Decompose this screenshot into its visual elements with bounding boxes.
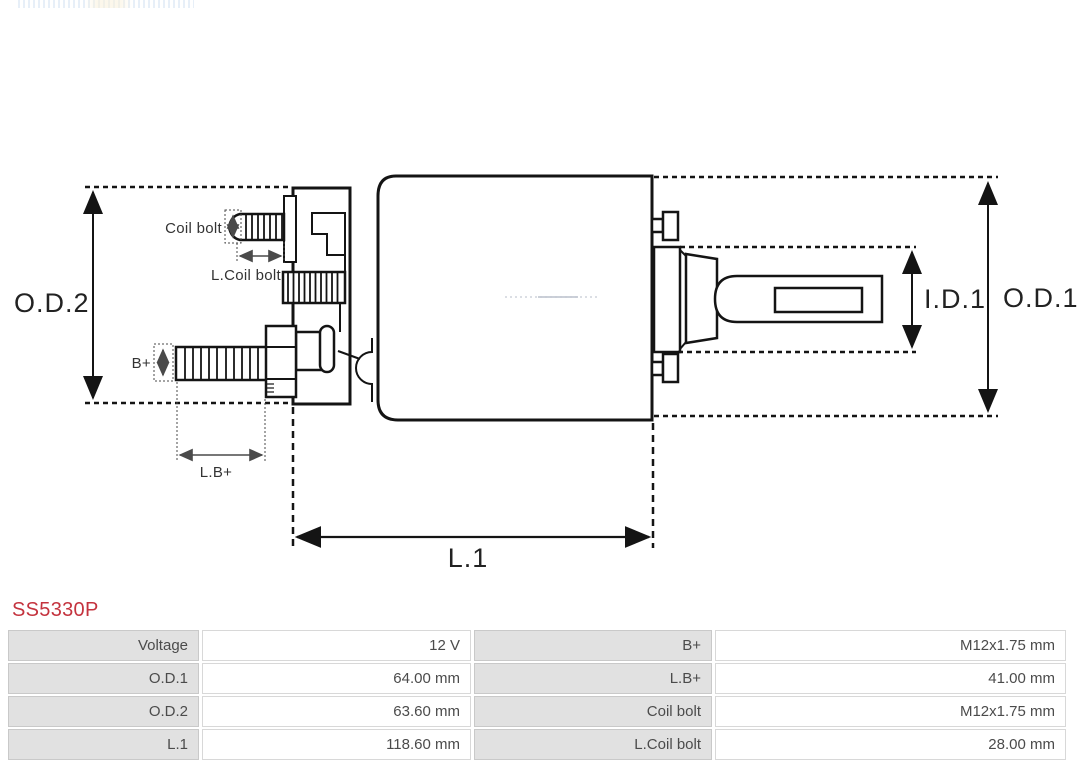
spec-label-cell: O.D.2 bbox=[8, 696, 199, 727]
spec-value-cell: 118.60 mm bbox=[202, 729, 471, 760]
spec-label-cell: B+ bbox=[474, 630, 712, 661]
spec-label-cell: Voltage bbox=[8, 630, 199, 661]
spec-label-cell: Coil bolt bbox=[474, 696, 712, 727]
id1-label: I.D.1 bbox=[924, 284, 986, 314]
spec-label-cell: L.B+ bbox=[474, 663, 712, 694]
b-plus-label: B+ bbox=[132, 355, 151, 372]
plunger-graphic bbox=[654, 247, 882, 352]
spec-value-cell: 28.00 mm bbox=[715, 729, 1066, 760]
dimension-b-plus: B+ bbox=[132, 344, 173, 381]
od1-label: O.D.1 bbox=[1003, 283, 1079, 313]
l-b-plus-label: L.B+ bbox=[200, 464, 232, 481]
od2-label: O.D.2 bbox=[14, 288, 90, 318]
spec-label-cell: L.1 bbox=[8, 729, 199, 760]
spec-label-cell: L.Coil bolt bbox=[474, 729, 712, 760]
table-row: O.D.1 64.00 mm L.B+ 41.00 mm bbox=[8, 663, 1066, 694]
table-row: L.1 118.60 mm L.Coil bolt 28.00 mm bbox=[8, 729, 1066, 760]
part-number: SS5330P bbox=[12, 599, 99, 622]
l-coil-bolt-label: L.Coil bolt bbox=[211, 267, 282, 284]
coil-bolt-label: Coil bolt bbox=[165, 220, 222, 237]
spec-value-cell: 63.60 mm bbox=[202, 696, 471, 727]
l1-label: L.1 bbox=[448, 543, 489, 573]
solenoid-technical-drawing: O.D.2 bbox=[0, 0, 1080, 592]
dimension-l1: L.1 bbox=[293, 407, 653, 573]
coil-bolt-graphic bbox=[229, 214, 284, 240]
dimension-l-b-plus: L.B+ bbox=[177, 382, 265, 481]
spec-value-cell: M12x1.75 mm bbox=[715, 630, 1066, 661]
spec-label-cell: O.D.1 bbox=[8, 663, 199, 694]
solenoid-body bbox=[378, 176, 652, 420]
spec-value-cell: 41.00 mm bbox=[715, 663, 1066, 694]
dimension-l-coil-bolt: L.Coil bolt bbox=[211, 242, 284, 284]
spec-value-cell: 64.00 mm bbox=[202, 663, 471, 694]
table-row: Voltage 12 V B+ M12x1.75 mm bbox=[8, 630, 1066, 661]
spec-value-cell: 12 V bbox=[202, 630, 471, 661]
b-plus-bolt-graphic bbox=[176, 326, 296, 397]
spec-table: Voltage 12 V B+ M12x1.75 mm O.D.1 64.00 … bbox=[8, 630, 1066, 760]
spec-value-cell: M12x1.75 mm bbox=[715, 696, 1066, 727]
table-row: O.D.2 63.60 mm Coil bolt M12x1.75 mm bbox=[8, 696, 1066, 727]
